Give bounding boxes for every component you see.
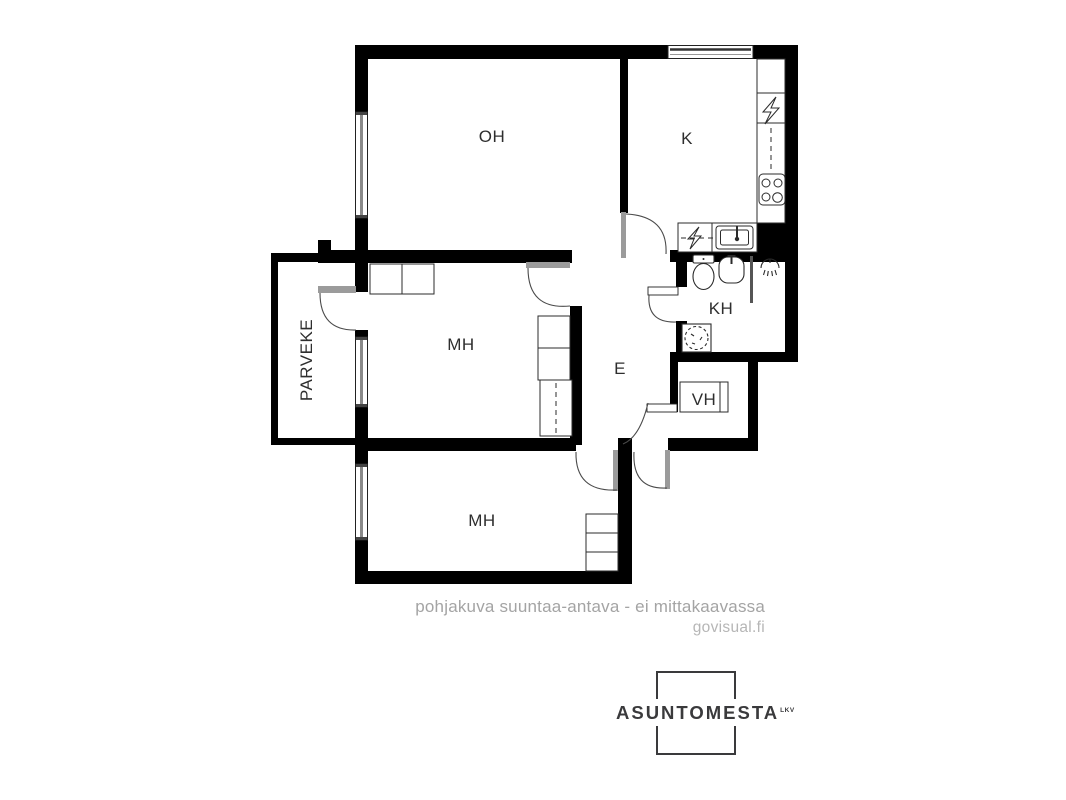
wardrobe-icon — [586, 514, 618, 571]
stove-icon — [759, 174, 785, 205]
washing-machine-icon — [682, 324, 711, 352]
door-swing-arc — [528, 268, 570, 306]
kitchen-door — [621, 212, 666, 258]
window-icon — [356, 464, 368, 540]
wall — [757, 223, 790, 252]
room-label-bedroom2: MH — [468, 511, 495, 531]
washbasin-icon — [719, 255, 744, 283]
logo-wordmark: ASUNTOMESTALKV — [616, 699, 776, 726]
wardrobes — [370, 264, 728, 571]
disclaimer-text: pohjakuva suuntaa-antava - ei mittakaava… — [415, 597, 765, 617]
wall — [355, 438, 576, 451]
room-label-kitchen: K — [681, 129, 693, 149]
balcony-wall — [271, 253, 318, 262]
wall — [355, 250, 368, 292]
bedroom2-door — [576, 450, 618, 491]
wall — [355, 45, 668, 59]
window-icon — [356, 337, 368, 407]
door-swing-arc — [649, 295, 676, 322]
wall — [355, 45, 368, 112]
wardrobe-reservation-icon — [540, 380, 572, 436]
watermark-text: govisual.fi — [693, 619, 765, 637]
room-label-living-room: OH — [479, 127, 506, 147]
balcony-door — [318, 286, 356, 330]
logo-name: ASUNTOMESTA — [616, 702, 779, 723]
bathroom-door — [648, 287, 678, 322]
wardrobe-icon — [370, 264, 434, 294]
wall — [670, 352, 798, 362]
room-label-hallway: E — [614, 359, 626, 379]
balcony-wall — [271, 438, 356, 445]
logo-suffix: LKV — [780, 707, 795, 714]
room-label-bedroom1: MH — [447, 335, 474, 355]
toilet-icon — [693, 255, 714, 290]
window-icon — [356, 112, 368, 218]
floorplan-drawing — [0, 0, 1066, 800]
wall — [748, 352, 758, 451]
door-swing-arc — [320, 293, 356, 330]
wall — [318, 240, 331, 251]
door-swing-arc — [623, 403, 648, 444]
wall — [620, 59, 628, 213]
wall — [676, 250, 687, 287]
balcony-wall — [271, 253, 278, 445]
shower-icon — [761, 259, 779, 276]
wall — [785, 45, 798, 362]
kitchen-fixtures — [678, 59, 785, 252]
closet-door — [623, 403, 677, 444]
window-icon — [668, 46, 753, 59]
sink-icon — [716, 226, 753, 249]
wall — [668, 438, 758, 451]
wardrobe-icon — [538, 316, 570, 380]
door-swing-arc — [626, 214, 666, 254]
room-label-balcony: PARVEKE — [297, 319, 317, 401]
door-swing-arc — [634, 452, 667, 488]
room-label-bathroom: KH — [709, 299, 734, 319]
room-label-closet: VH — [692, 390, 717, 410]
shower-partition — [750, 256, 753, 303]
wall — [618, 438, 632, 584]
floorplan-canvas: OH K MH E KH VH MH PARVEKE pohjakuva suu… — [0, 0, 1066, 800]
wall — [355, 571, 632, 584]
door-swing-arc — [576, 452, 617, 490]
agency-logo: ASUNTOMESTALKV — [616, 668, 776, 760]
bedroom1-door — [526, 262, 570, 306]
entrance-door — [634, 450, 670, 489]
